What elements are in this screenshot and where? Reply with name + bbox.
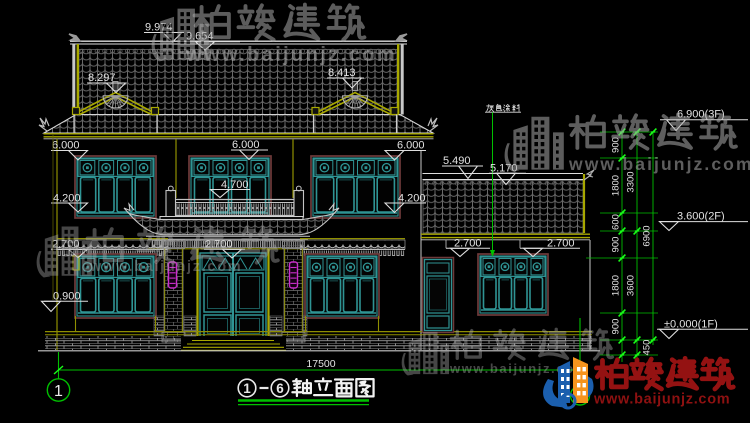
svg-text:1800: 1800 — [611, 175, 622, 196]
svg-text:900: 900 — [611, 237, 622, 253]
svg-text:±0.000(1F): ±0.000(1F) — [664, 319, 718, 331]
svg-text:6.000: 6.000 — [232, 139, 260, 151]
svg-text:www.baijunjz.com: www.baijunjz.com — [185, 44, 397, 66]
svg-text:6: 6 — [276, 381, 284, 396]
svg-text:2.700: 2.700 — [547, 238, 575, 250]
svg-text:900: 900 — [611, 137, 622, 153]
svg-text:0.900: 0.900 — [53, 291, 81, 303]
svg-text:3300: 3300 — [626, 171, 637, 192]
svg-text:6900: 6900 — [642, 225, 653, 246]
svg-text:900: 900 — [611, 319, 622, 335]
svg-text:2.700: 2.700 — [454, 238, 482, 250]
svg-text:5.490: 5.490 — [443, 155, 471, 167]
svg-text:3600: 3600 — [626, 275, 637, 296]
svg-text:17500: 17500 — [306, 358, 335, 370]
svg-text:8.297: 8.297 — [88, 72, 116, 84]
svg-text:www.baijunjz.com: www.baijunjz.com — [593, 392, 730, 408]
svg-text:600: 600 — [611, 214, 622, 230]
svg-text:6.000: 6.000 — [397, 140, 425, 152]
svg-text:8.413: 8.413 — [328, 67, 356, 79]
svg-text:450: 450 — [642, 340, 653, 356]
svg-text:6.000: 6.000 — [52, 140, 80, 152]
svg-text:www.baijunjz.com: www.baijunjz.com — [568, 154, 750, 174]
svg-text:3.600(2F): 3.600(2F) — [677, 211, 725, 223]
svg-text:1: 1 — [243, 381, 251, 396]
svg-text:1: 1 — [54, 383, 63, 400]
svg-text:www.baijunjz.com: www.baijunjz.com — [89, 259, 242, 275]
svg-text:1800: 1800 — [611, 275, 622, 296]
